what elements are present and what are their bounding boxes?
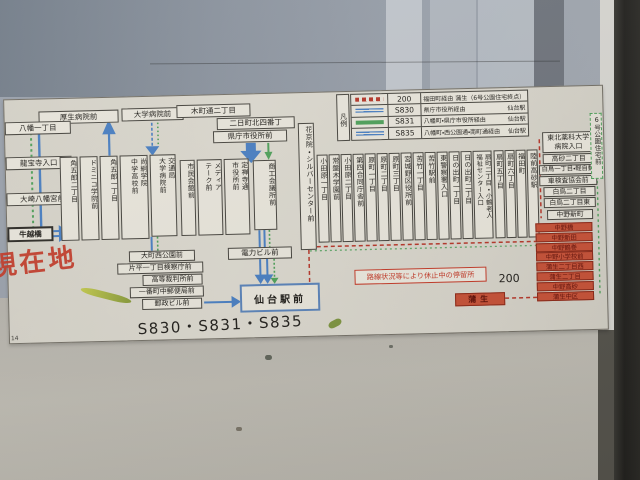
stop-box: 扇町六丁目 (504, 150, 516, 238)
route-via: 八幡町・西公園通・南町通経由 (424, 126, 500, 137)
terminal-label-box: 6号公園住宅前 (590, 113, 604, 179)
stop-box: 宮城野区役所前 (401, 152, 414, 240)
stop-label: テーク前 (202, 162, 213, 234)
gamo-terminal-box: 蒲生 (455, 292, 505, 306)
stop-box: 交通局大学病院前 (149, 154, 177, 237)
stop-box: ドミニコ学院前 (80, 156, 100, 240)
stop-box: 苦竹駅前 (425, 152, 438, 240)
glass-glare-strip (386, 0, 422, 97)
stop-label: メディア (212, 162, 223, 234)
corner-mark: 14 (11, 335, 19, 342)
route-map-sign: 凡例 200 福田町経由蒲生（6号公園住宅終点） S830 県庁市役所経由仙台駅… (3, 85, 609, 345)
stop-box: 第四合同庁舎前 (353, 154, 366, 242)
stop-box: 白鳥二丁目 (543, 186, 595, 197)
debris-speck (265, 355, 272, 360)
glass-shadow-strip (534, 0, 564, 97)
route-number: S831 (388, 116, 422, 127)
route-number: S835 (388, 127, 422, 139)
route-via: 福田町経由 (423, 93, 453, 103)
stop-box: 原町三丁目 (389, 153, 402, 241)
arrow-down-to-station-2 (262, 275, 272, 283)
suspended-stop-box: 蒲生中区 (537, 291, 594, 301)
stop-box: 片平一丁目検察庁前 (117, 262, 203, 275)
stop-label: 交通局 (165, 157, 176, 235)
stop-box: メディアテーク前 (197, 159, 224, 236)
stop-box: 福田町 (515, 150, 527, 238)
stop-box: 東北薬科大学病院入口 (542, 131, 594, 153)
suspended-stop-box: 中野新田 (536, 232, 593, 242)
stop-box: 花京院・シルバーセンター前 (298, 123, 317, 250)
window-frame-right (614, 0, 640, 480)
route-destination: 蒲生（6号公園住宅終点） (455, 91, 525, 102)
route-number: 200 (387, 93, 421, 104)
debris-speck (236, 427, 242, 431)
stop-label: 大学病院前 (156, 157, 167, 235)
stop-box: 高等裁判所前 (142, 274, 202, 286)
stop-box: 小田原二丁目 (341, 154, 354, 242)
stop-box: 電力ビル前 (228, 246, 292, 260)
stop-label: 病院入口 (554, 142, 582, 151)
stop-box: 市民会館前 (180, 160, 197, 236)
stop-box: 大町西公園前 (129, 250, 195, 263)
stop-box: 角五郎二丁目 (60, 157, 80, 241)
stop-box: 中野新町 (547, 209, 593, 220)
stop-box: 角五郎一丁目 (100, 156, 120, 240)
stop-label: 福祉センター入口 (474, 154, 485, 238)
bus-route-sign-photo: 凡例 200 福田町経由蒲生（6号公園住宅終点） S830 県庁市役所経由仙台駅… (0, 0, 640, 480)
stop-label: 市役所前 (229, 162, 240, 234)
legend-title: 凡例 (336, 94, 350, 141)
route-s830-line-sample (351, 105, 387, 116)
suspended-stop-box: 中野高砂 (537, 281, 594, 291)
route-via: 八幡町・県庁市役所経由 (424, 115, 486, 126)
stop-box: 扇町二丁目・小鶴老人福祉センター入口 (472, 150, 493, 238)
legend: 200 福田町経由蒲生（6号公園住宅終点） S830 県庁市役所経由仙台駅 S8… (350, 90, 529, 141)
stop-label: 中学高校前 (128, 158, 139, 238)
route-200-line-sample (351, 94, 387, 105)
stop-box: 県庁市役所前 (213, 129, 287, 143)
stop-box: 白鳥二丁目東 (544, 197, 596, 208)
sendai-station-box: 仙台駅前 (240, 283, 321, 313)
stop-box: 車検査協会前 (539, 175, 597, 186)
suspended-stop-box: 中野小学校前 (536, 251, 593, 261)
stop-box: 常盤木学園前 (329, 154, 342, 242)
stop-box: 八幡一丁目 (5, 121, 71, 136)
stop-box: 一番町中郵便局前 (130, 286, 204, 299)
glass-glare-strip (478, 0, 534, 97)
route-s835-line-sample (352, 128, 388, 140)
route-destination: 仙台駅 (508, 125, 526, 134)
glass-glare-strip (430, 0, 476, 97)
stop-box: 尚絅学院中学高校前 (120, 155, 150, 240)
stop-box: 原町二丁目 (377, 153, 390, 241)
stop-box: 日の出町一丁目 (449, 151, 462, 239)
route-200-caption: 200 (498, 272, 519, 286)
stop-box: 東警察署入口 (437, 152, 450, 240)
stop-box: 木町通二丁目 (176, 103, 250, 118)
route-destination: 仙台駅 (508, 114, 526, 123)
stop-box: 高砂二丁目 (543, 153, 595, 164)
glass-reflection-top (0, 0, 640, 97)
stop-box: 郵政ビル前 (142, 298, 202, 310)
stop-box: 商工会議所前 (253, 160, 278, 231)
stop-box: 大学病院前 (121, 107, 183, 122)
route-via: 県庁市役所経由 (423, 104, 465, 114)
stop-label: 定禅寺通 (239, 161, 250, 233)
suspended-stop-box: 蒲生二丁目 (536, 271, 593, 281)
stop-box: 二日町北四番丁 (217, 116, 295, 130)
stop-box: 苦竹一丁目 (413, 152, 426, 240)
stop-box: 白鳥一丁目・軽自動 (539, 164, 597, 175)
route-destination: 仙台駅 (507, 102, 525, 111)
route-number: S830 (387, 104, 421, 115)
debris-speck (389, 345, 393, 348)
arrow-right-to-station (232, 297, 240, 307)
route-s831-line-sample (352, 116, 388, 127)
stop-box: 定禅寺通市役所前 (224, 158, 251, 235)
suspended-stop-box: 中野鶴巻 (536, 242, 593, 252)
stop-box: 日の出町二丁目 (460, 151, 473, 239)
stop-box: 原町一丁目 (365, 153, 378, 241)
suspended-stop-box: 蒲生二丁目西 (536, 261, 593, 271)
stop-box: 小田原一丁目 (317, 154, 330, 242)
suspended-stop-box: 中野橋 (535, 222, 592, 232)
